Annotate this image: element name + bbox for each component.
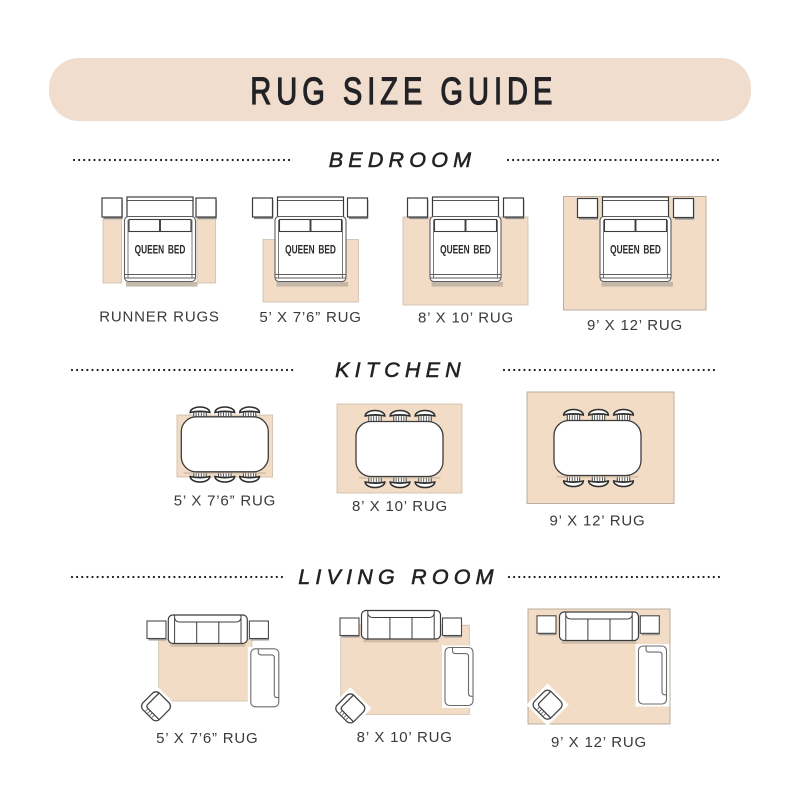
svg-text:8’ X 10’ RUG: 8’ X 10’ RUG bbox=[357, 729, 453, 746]
svg-text:5’ X 7’6” RUG: 5’ X 7’6” RUG bbox=[259, 309, 361, 326]
svg-text:9’ X 12’ RUG: 9’ X 12’ RUG bbox=[587, 317, 683, 334]
svg-text:KITCHEN: KITCHEN bbox=[335, 358, 466, 382]
svg-text:RUNNER RUGS: RUNNER RUGS bbox=[99, 309, 219, 326]
svg-text:8’ X 10’ RUG: 8’ X 10’ RUG bbox=[352, 498, 448, 515]
svg-text:5’ X 7’6” RUG: 5’ X 7’6” RUG bbox=[174, 493, 276, 510]
svg-text:RUG SIZE GUIDE: RUG SIZE GUIDE bbox=[250, 70, 557, 113]
svg-text:9’ X 12’ RUG: 9’ X 12’ RUG bbox=[549, 513, 645, 530]
svg-text:9’ X 12’ RUG: 9’ X 12’ RUG bbox=[551, 734, 647, 751]
svg-text:BEDROOM: BEDROOM bbox=[329, 148, 477, 172]
svg-text:LIVING ROOM: LIVING ROOM bbox=[298, 565, 499, 589]
svg-text:5’ X 7’6” RUG: 5’ X 7’6” RUG bbox=[156, 730, 258, 747]
svg-text:8’ X 10’ RUG: 8’ X 10’ RUG bbox=[418, 310, 514, 327]
